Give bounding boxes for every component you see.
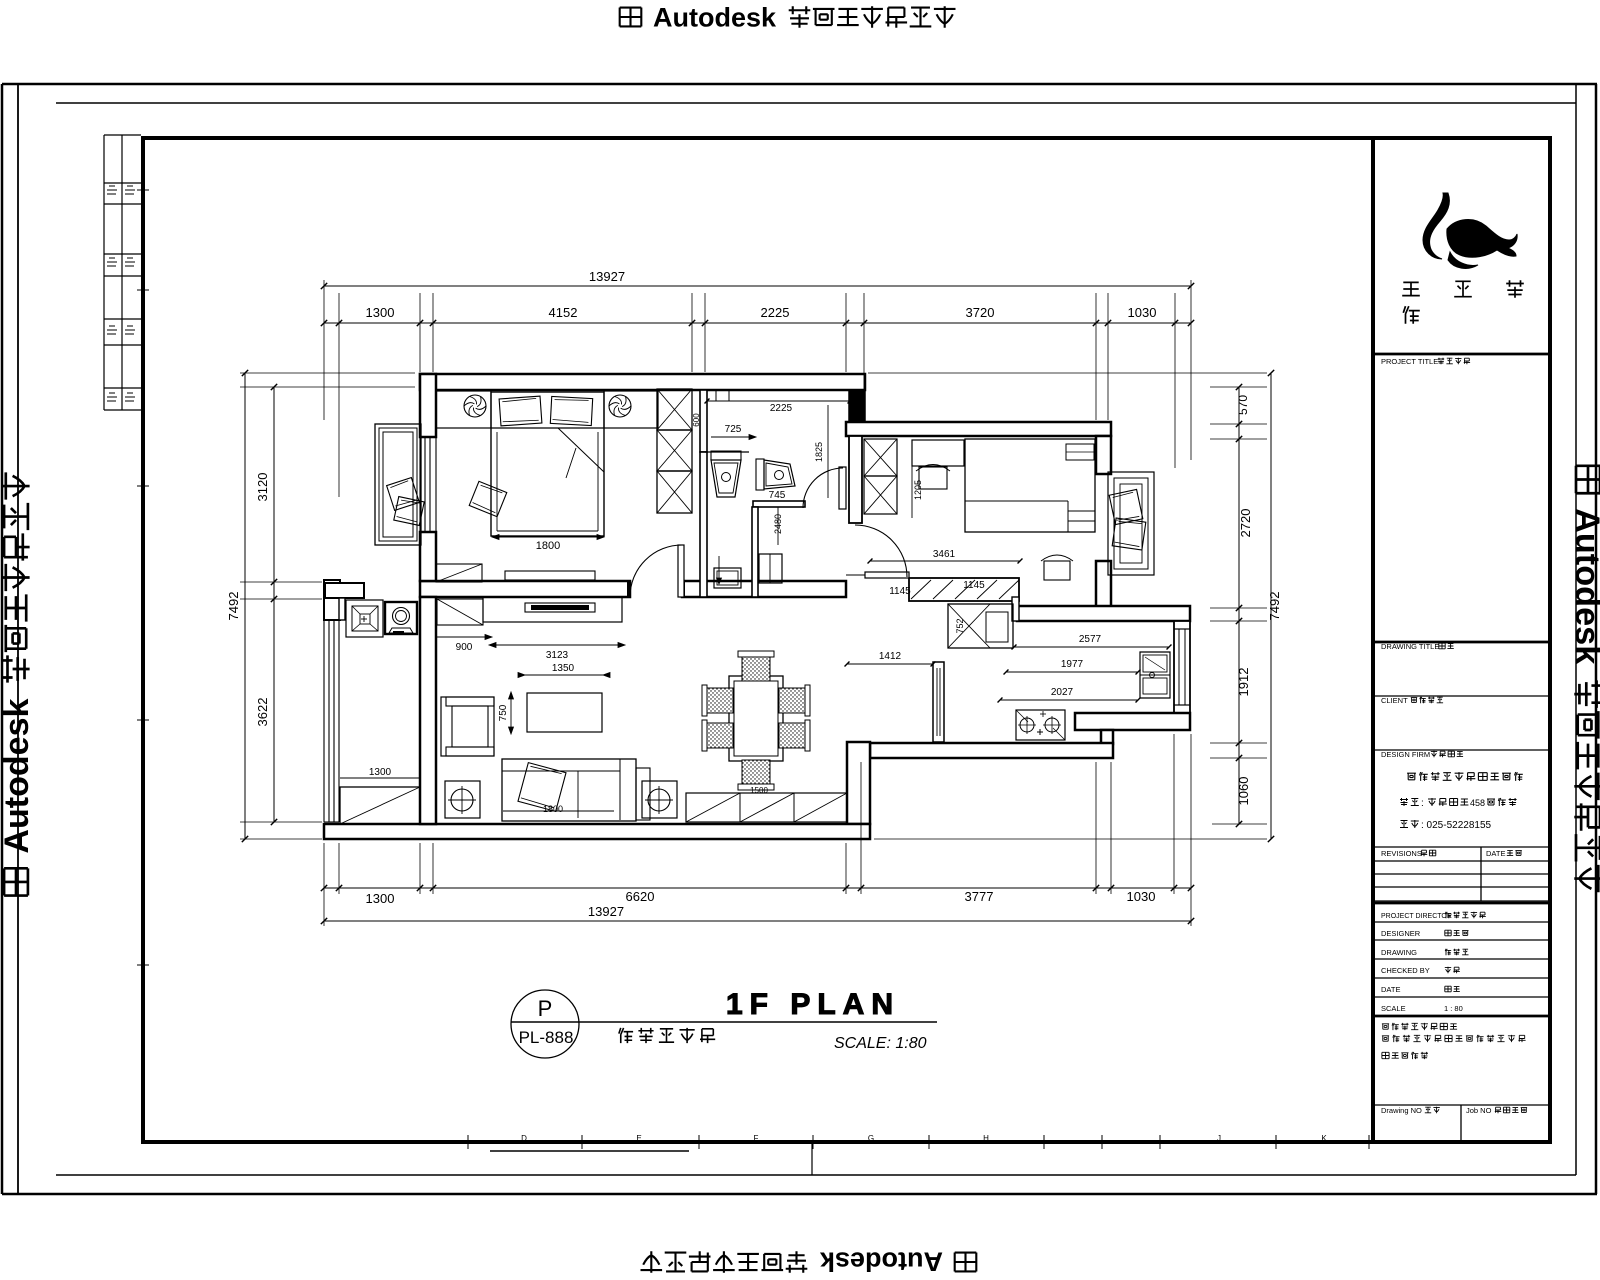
svg-text:1412: 1412: [879, 651, 902, 662]
svg-text:1F PLAN: 1F PLAN: [726, 988, 900, 1021]
svg-text:3777: 3777: [965, 889, 994, 904]
svg-text:SCALE: 1:80: SCALE: 1:80: [834, 1035, 927, 1052]
svg-text:7492: 7492: [1267, 592, 1282, 621]
svg-text:2027: 2027: [1051, 687, 1074, 698]
svg-text:F: F: [754, 1134, 759, 1143]
svg-text:D: D: [521, 1134, 527, 1143]
svg-text:1030: 1030: [1127, 889, 1156, 904]
svg-text:1500: 1500: [750, 786, 768, 795]
svg-text:Drawing NO: Drawing NO: [1381, 1106, 1422, 1115]
svg-text:1912: 1912: [1236, 668, 1251, 697]
svg-text:Autodesk: Autodesk: [1568, 508, 1600, 665]
svg-text:2720: 2720: [1238, 509, 1253, 538]
svg-text:3120: 3120: [255, 473, 270, 502]
svg-text:1825: 1825: [814, 442, 824, 462]
svg-text:CHECKED BY: CHECKED BY: [1381, 966, 1430, 975]
svg-text:G: G: [868, 1134, 874, 1143]
svg-text:13927: 13927: [588, 904, 624, 919]
svg-text:PROJECT DIRECTOR: PROJECT DIRECTOR: [1381, 913, 1452, 920]
svg-text:1145: 1145: [963, 580, 985, 591]
svg-text:1300: 1300: [369, 767, 392, 778]
svg-text::: :: [1421, 798, 1424, 809]
svg-text:1800: 1800: [536, 540, 560, 552]
svg-text:Autodesk: Autodesk: [0, 699, 36, 854]
svg-text:K: K: [1321, 1134, 1327, 1143]
svg-text:3622: 3622: [255, 698, 270, 727]
svg-text:1800: 1800: [543, 804, 563, 814]
svg-text:4152: 4152: [549, 305, 578, 320]
svg-text:2577: 2577: [1079, 634, 1102, 645]
svg-text:1977: 1977: [1061, 659, 1084, 670]
svg-text:13927: 13927: [589, 269, 625, 284]
svg-text:DATE: DATE: [1381, 985, 1400, 994]
svg-text:PL-888: PL-888: [519, 1028, 574, 1047]
svg-text:1145: 1145: [889, 586, 911, 597]
svg-text:E: E: [636, 1134, 641, 1143]
svg-text:3123: 3123: [546, 650, 569, 661]
svg-text:7492: 7492: [226, 592, 241, 621]
svg-text:DRAWING TITLE: DRAWING TITLE: [1381, 642, 1439, 651]
svg-text:458: 458: [1470, 798, 1485, 808]
svg-text:H: H: [983, 1134, 989, 1143]
svg-text:2225: 2225: [770, 403, 793, 414]
svg-text:3720: 3720: [966, 305, 995, 320]
svg-text:3461: 3461: [933, 549, 956, 560]
svg-text:PROJECT TITLE: PROJECT TITLE: [1381, 357, 1438, 366]
svg-text:P: P: [538, 996, 553, 1021]
svg-text:DESIGN FIRM: DESIGN FIRM: [1381, 750, 1430, 759]
svg-text:Autodesk: Autodesk: [653, 3, 777, 33]
svg-text:1350: 1350: [552, 663, 575, 674]
svg-text:Autodesk: Autodesk: [819, 1247, 943, 1277]
svg-text:REVISIONS: REVISIONS: [1381, 849, 1422, 858]
svg-text:725: 725: [725, 424, 742, 435]
svg-text:: 025-52228155: : 025-52228155: [1421, 820, 1492, 831]
svg-text:1060: 1060: [1236, 777, 1251, 806]
svg-text:DESIGNER: DESIGNER: [1381, 929, 1421, 938]
svg-text:750: 750: [498, 704, 509, 721]
svg-text:1030: 1030: [1128, 305, 1157, 320]
svg-text:CLIENT: CLIENT: [1381, 696, 1408, 705]
svg-text:DRAWING: DRAWING: [1381, 948, 1417, 957]
svg-text:Job NO: Job NO: [1466, 1106, 1492, 1115]
svg-text:1300: 1300: [366, 891, 395, 906]
svg-text:J: J: [1217, 1134, 1221, 1143]
svg-text:1 : 80: 1 : 80: [1444, 1004, 1463, 1013]
svg-text:SCALE: SCALE: [1381, 1004, 1406, 1013]
svg-text:900: 900: [456, 642, 473, 653]
svg-text:1300: 1300: [366, 305, 395, 320]
svg-text:DATE: DATE: [1486, 849, 1505, 858]
svg-text:6620: 6620: [626, 889, 655, 904]
svg-text:752: 752: [955, 618, 965, 633]
svg-text:2225: 2225: [761, 305, 790, 320]
svg-text:600: 600: [692, 413, 701, 427]
svg-text:1205: 1205: [913, 480, 923, 500]
svg-text:745: 745: [769, 490, 786, 501]
svg-text:570: 570: [1236, 395, 1250, 415]
